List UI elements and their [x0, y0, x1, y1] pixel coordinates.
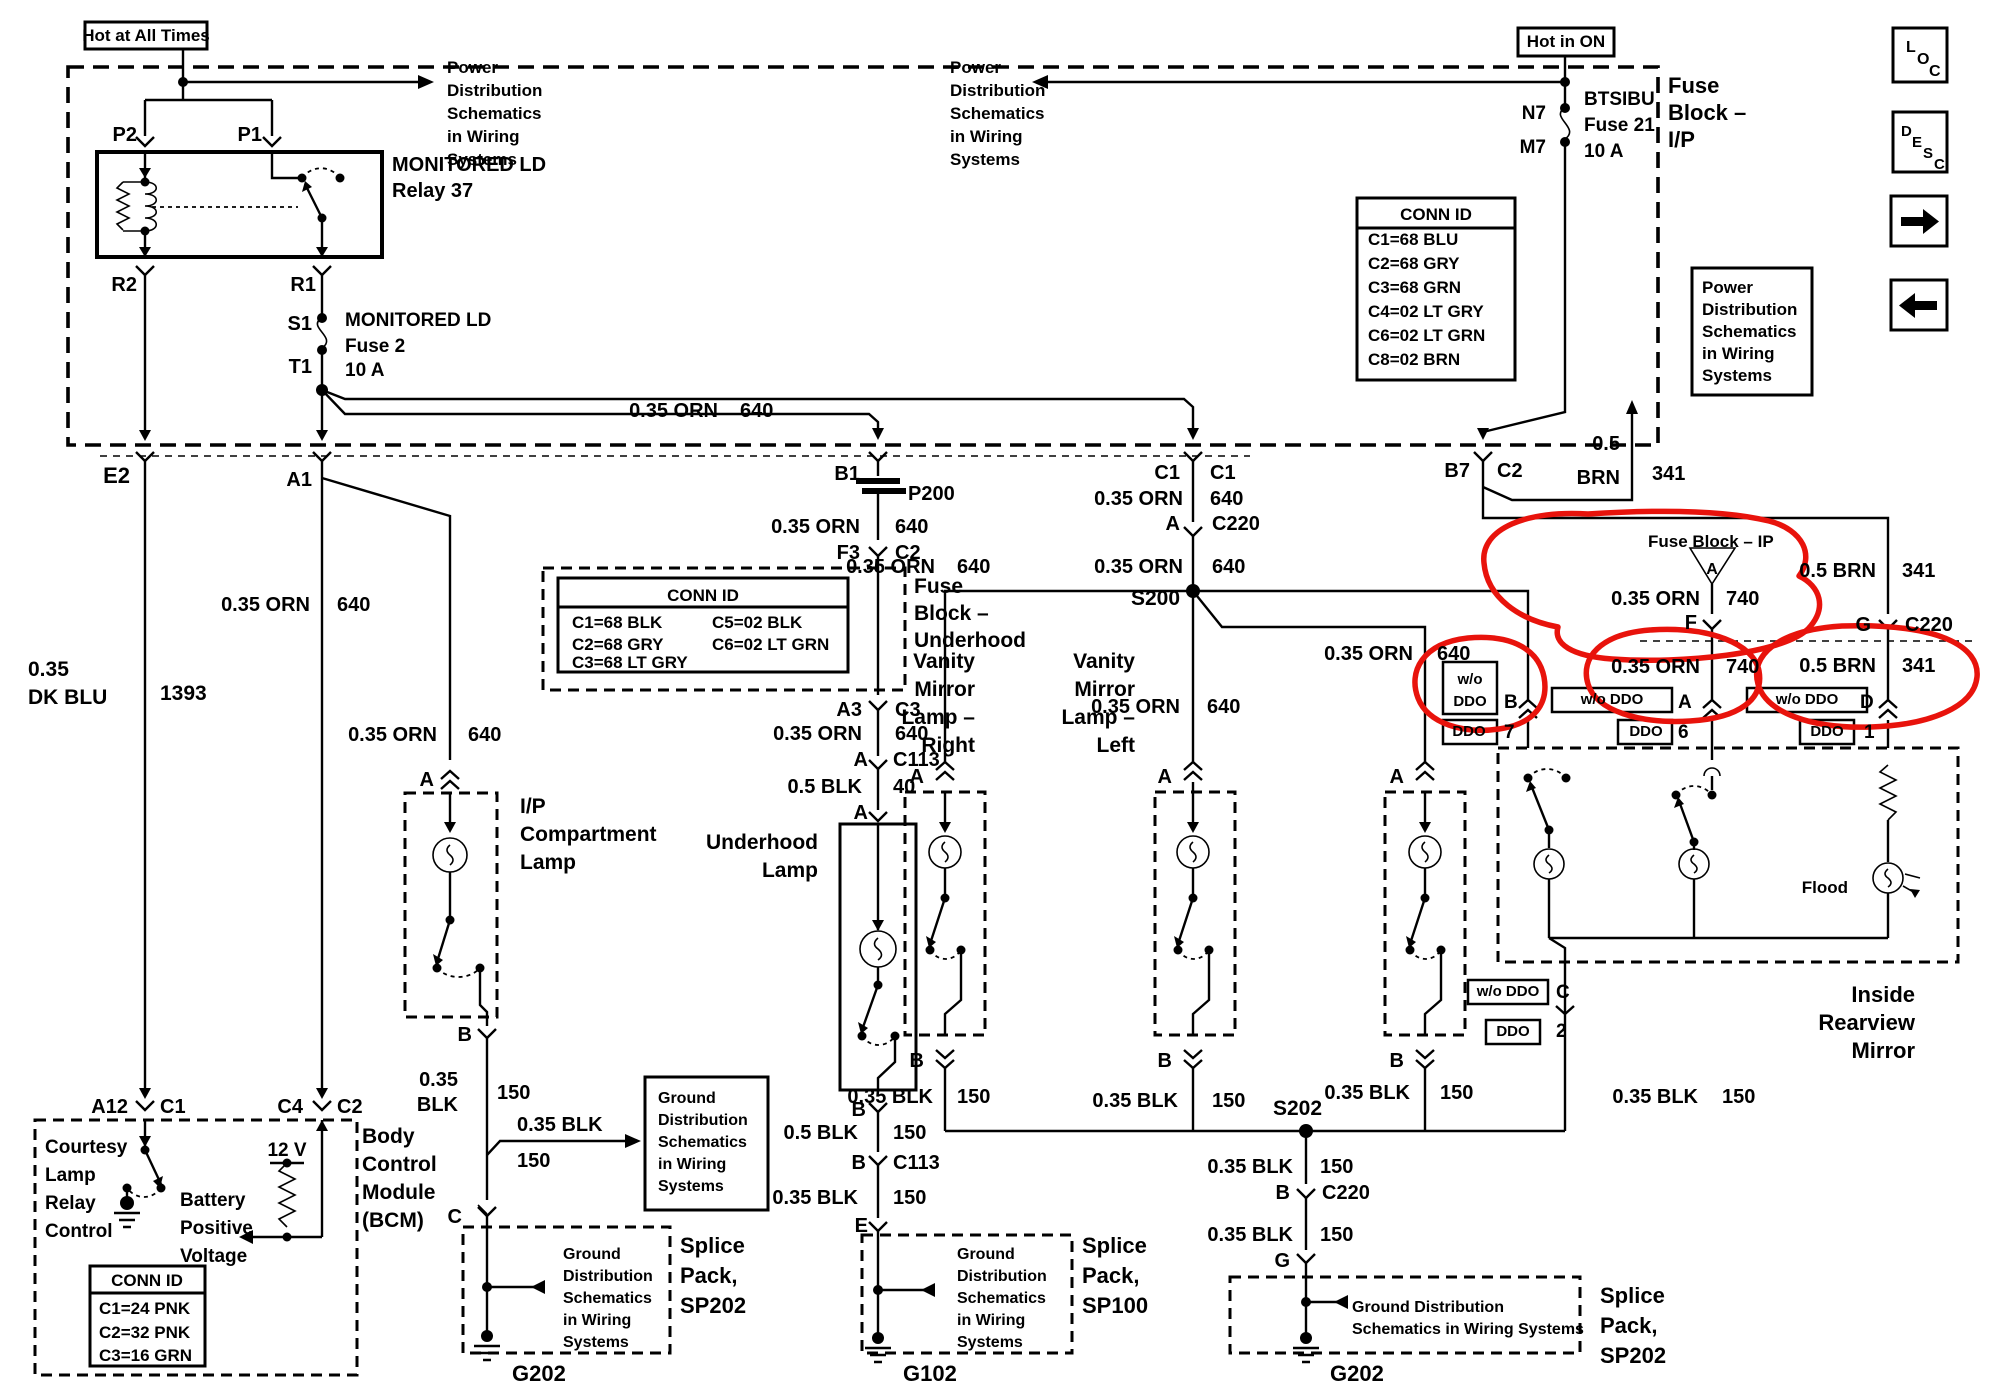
blk-lobe: 0.35 BLK: [1324, 1082, 1410, 1104]
pd-topright-2: Distribution: [950, 81, 1045, 100]
mirror-resistor: [1880, 765, 1896, 820]
wiring-diagram: Hot at All TimesHot in ONFuseBlock –I/PP…: [0, 0, 1994, 1399]
g-lbl: G: [1855, 614, 1871, 636]
orn-feed: 0.35 ORN: [629, 400, 718, 422]
t1: T1: [289, 356, 312, 378]
loc-l: L: [1906, 39, 1916, 56]
desc-e: E: [1912, 134, 1922, 151]
bcm-3: Module: [362, 1181, 436, 1204]
mirror-map-lamp-lobe: [1385, 792, 1465, 1131]
pd-topleft-1: Power: [447, 58, 498, 77]
connid-ip-2: C2=68 GRY: [1368, 254, 1460, 273]
p200-connector: [856, 478, 900, 484]
f3-orn: 0.35 ORN: [771, 516, 860, 538]
pin-b: B: [1504, 692, 1518, 713]
blk-mir: 0.35 BLK: [1612, 1086, 1698, 1108]
sp202r-2: Schematics in Wiring Systems: [1352, 1321, 1584, 1338]
b7-c2: C2: [1497, 460, 1523, 482]
vanity-r-1: Vanity: [913, 650, 975, 673]
branch-mirror-lobe: [1193, 591, 1425, 762]
b-lobe: B: [1390, 1050, 1404, 1072]
g-05brn-1: 0.5 BRN: [1799, 560, 1876, 582]
underhood-2: Lamp: [762, 859, 818, 882]
blk-ip: BLK: [417, 1094, 459, 1116]
b-ip: B: [458, 1024, 472, 1046]
vanity-r-2: Mirror: [914, 678, 975, 701]
pd-topleft-4: in Wiring: [447, 127, 520, 146]
g-341-1: 341: [1902, 560, 1935, 582]
btsibu-1: BTSIBU: [1584, 89, 1655, 110]
150-uh2: 150: [893, 1187, 926, 1209]
sp202l-3: Schematics: [563, 1290, 652, 1307]
sp202l-2: Distribution: [563, 1268, 653, 1285]
splice-l-1: Splice: [680, 1233, 745, 1258]
brn-05: 0.5: [1592, 433, 1620, 455]
monitored-ld-fuse-2: [313, 266, 1199, 461]
blk-branch: 0.35 BLK: [517, 1114, 603, 1136]
c4: C4: [277, 1096, 303, 1118]
f-orn1: 0.35 ORN: [1611, 588, 1700, 610]
sp100-2: Distribution: [957, 1268, 1047, 1285]
orn-uh: 0.35 ORN: [773, 723, 862, 745]
c113-1: C113: [893, 749, 940, 771]
c220-orn: 0.35 ORN: [1094, 488, 1183, 510]
p2: P2: [113, 124, 137, 146]
gd-box-3: Schematics: [658, 1134, 747, 1151]
e2: E2: [103, 463, 130, 488]
connid-uh-1: C1=68 BLK: [572, 613, 663, 632]
f-740-2: 740: [1726, 656, 1759, 678]
g-c220: C220: [1905, 614, 1953, 636]
sp100-4: in Wiring: [957, 1312, 1025, 1329]
blk-vl: 0.35 BLK: [1092, 1090, 1178, 1112]
c113-2: C113: [893, 1152, 940, 1174]
blk-uh: 0.35 BLK: [772, 1187, 858, 1209]
g-341-2: 341: [1902, 655, 1935, 677]
wire-dk-blu-1393: [136, 266, 154, 1110]
c220-s202: C220: [1322, 1182, 1370, 1204]
c1-right: C1: [1210, 462, 1236, 484]
05blk-uh: 0.5 BLK: [788, 776, 863, 798]
connid-bcm-h: CONN ID: [111, 1271, 183, 1290]
150-mir: 150: [1722, 1086, 1755, 1108]
p200: P200: [908, 483, 955, 505]
pd-topright-4: in Wiring: [950, 127, 1023, 146]
connid-bcm-3: C3=16 GRN: [99, 1346, 192, 1365]
sp100-5: Systems: [957, 1334, 1023, 1351]
a12: A12: [91, 1096, 128, 1118]
btsibu-2: Fuse 21: [1584, 115, 1655, 136]
battery-3: Voltage: [180, 1246, 247, 1267]
bcm-4: (BCM): [362, 1209, 424, 1232]
035-ip: 0.35: [419, 1069, 458, 1091]
b-vr: B: [910, 1050, 924, 1072]
r2: R2: [111, 274, 137, 296]
blk-s2: 0.35 BLK: [1207, 1224, 1293, 1246]
640-vl: 640: [1207, 696, 1240, 718]
fbip-small: Fuse Block – IP: [1648, 532, 1774, 551]
150-uh1: 150: [893, 1122, 926, 1144]
fb-uh-3: Underhood: [914, 629, 1026, 652]
irm-2: Rearview: [1818, 1010, 1916, 1035]
fuse2-3: 10 A: [345, 360, 385, 381]
hot-in-on: Hot in ON: [1527, 32, 1605, 51]
sp100-3: Schematics: [957, 1290, 1046, 1307]
splice-r-2: Pack,: [1600, 1313, 1658, 1338]
r1: R1: [290, 274, 316, 296]
g-s202: G: [1274, 1250, 1290, 1272]
s200-640: 640: [1212, 556, 1245, 578]
ddo-c: DDO: [1496, 1023, 1530, 1040]
wire-orn-640-a1: [313, 461, 459, 1110]
splice-100-3: SP100: [1082, 1293, 1148, 1318]
pd-topleft-2: Distribution: [447, 81, 542, 100]
pin-7: 7: [1504, 722, 1515, 743]
wiring-diagram-page: Hot at All TimesHot in ONFuseBlock –I/PP…: [0, 0, 1994, 1399]
btsibu-3: 10 A: [1584, 141, 1624, 162]
fuse-block-ip-3: I/P: [1668, 127, 1695, 152]
courtesy-3: Relay: [45, 1193, 96, 1214]
battery-2: Positive: [180, 1218, 253, 1239]
ground-g102: [865, 1348, 891, 1362]
ip-lamp-3: Lamp: [520, 851, 576, 874]
150-branch: 150: [517, 1150, 550, 1172]
orn-ip: 0.35 ORN: [348, 724, 437, 746]
b1: B1: [834, 463, 860, 485]
640-a1: 640: [337, 594, 370, 616]
bcm-1: Body: [362, 1125, 415, 1148]
pd-rightbox-2: Distribution: [1702, 300, 1797, 319]
connid-uh-h: CONN ID: [667, 586, 739, 605]
diagram-labels: Hot at All TimesHot in ONFuseBlock –I/PP…: [28, 26, 1953, 1386]
splice-100-2: Pack,: [1082, 1263, 1140, 1288]
640-lobe: 640: [1437, 643, 1470, 665]
c3: C3: [895, 699, 921, 721]
desc-c: C: [1934, 156, 1945, 173]
ip-lamp-2: Compartment: [520, 823, 657, 846]
splice-l-2: Pack,: [680, 1263, 738, 1288]
connid-ip-4: C4=02 LT GRY: [1368, 302, 1484, 321]
s200: S200: [1131, 587, 1180, 610]
fuse-block-ip-2: Block –: [1668, 100, 1746, 125]
a-lobe: A: [1390, 766, 1404, 788]
n7: N7: [1522, 103, 1546, 124]
branch-to-ip-lamp: [322, 478, 450, 760]
loc-c: C: [1929, 63, 1941, 80]
ddo-a: DDO: [1629, 723, 1663, 740]
connid-ip-6: C8=02 BRN: [1368, 350, 1460, 369]
loc-o: O: [1917, 51, 1929, 68]
courtesy-ground: [114, 1213, 140, 1227]
pd-topright-3: Schematics: [950, 104, 1045, 123]
m7: M7: [1520, 137, 1546, 158]
c1-left: C1: [1154, 462, 1180, 484]
connid-uh-2: C2=68 GRY: [572, 635, 664, 654]
fuse-block-ip-1: Fuse: [1668, 73, 1719, 98]
fuse2-1: MONITORED LD: [345, 310, 491, 331]
splice-r-3: SP202: [1600, 1343, 1666, 1368]
b-s202: B: [1276, 1182, 1290, 1204]
f-740-1: 740: [1726, 588, 1759, 610]
wo-ddo-c: w/o DDO: [1476, 983, 1540, 1000]
feed-line-to-b1: [322, 390, 878, 432]
fbip-a: A: [1706, 561, 1718, 578]
brn-brn: BRN: [1577, 467, 1620, 489]
g202-left: G202: [512, 1361, 566, 1386]
b7: B7: [1444, 460, 1470, 482]
connid-ip-1: C1=68 BLU: [1368, 230, 1458, 249]
s200-orn: 0.35 ORN: [1094, 556, 1183, 578]
pd-rightbox-1: Power: [1702, 278, 1753, 297]
150-ip: 150: [497, 1082, 530, 1104]
ip-lamp-1: I/P: [520, 795, 546, 818]
splice-l-3: SP202: [680, 1293, 746, 1318]
underhood-1: Underhood: [706, 831, 818, 854]
a-vl: A: [1158, 766, 1172, 788]
next-arrow-icon[interactable]: [1891, 196, 1947, 246]
relay-coil-resistor: [117, 182, 129, 230]
sp202r-1: Ground Distribution: [1352, 1299, 1504, 1316]
150-s2: 150: [1320, 1224, 1353, 1246]
640-uh: 640: [895, 723, 928, 745]
g202-right: G202: [1330, 1361, 1384, 1386]
orn-a1: 0.35 ORN: [221, 594, 310, 616]
pd-topleft-3: Schematics: [447, 104, 542, 123]
courtesy-2: Lamp: [45, 1165, 96, 1186]
inside-rearview-mirror: [1498, 748, 1958, 1131]
a-c113: A: [854, 749, 868, 771]
connid-bcm-1: C1=24 PNK: [99, 1299, 191, 1318]
pin-a: A: [1678, 692, 1692, 713]
connid-uh-4: C5=02 BLK: [712, 613, 803, 632]
wo-ddo-b1: w/o: [1457, 671, 1483, 688]
g-05brn-2: 0.5 BRN: [1799, 655, 1876, 677]
irm-3: Mirror: [1851, 1038, 1915, 1063]
desc-s: S: [1923, 145, 1933, 162]
hot-at-all-times: Hot at All Times: [82, 26, 210, 45]
a-ip: A: [420, 769, 434, 791]
c-ip: C: [448, 1206, 462, 1228]
splice-r-1: Splice: [1600, 1283, 1665, 1308]
sp202l-1: Ground: [563, 1246, 621, 1263]
s1: S1: [288, 313, 312, 335]
wo-ddo-d: w/o DDO: [1775, 691, 1839, 708]
gd-box-1: Ground: [658, 1090, 716, 1107]
bcm-2: Control: [362, 1153, 437, 1176]
pd-topright-1: Power: [950, 58, 1001, 77]
splice-100-1: Splice: [1082, 1233, 1147, 1258]
brn-341: 341: [1652, 463, 1685, 485]
a1: A1: [286, 469, 312, 491]
c220-640: 640: [1210, 488, 1243, 510]
desc-d: D: [1901, 123, 1912, 140]
bcm-resistor: [279, 1163, 295, 1227]
e-uh: E: [855, 1215, 868, 1237]
prev-arrow-icon[interactable]: [1891, 280, 1947, 330]
c220: C220: [1212, 513, 1260, 535]
a-uh2: A: [854, 802, 868, 824]
orn-lobe: 0.35 ORN: [1324, 643, 1413, 665]
relay-name-1: MONITORED LD: [392, 154, 546, 176]
relay-name-2: Relay 37: [392, 180, 473, 202]
monitored-ld-relay: [97, 49, 434, 257]
ddo-d: DDO: [1810, 723, 1844, 740]
fb-uh-2: Block –: [914, 602, 989, 625]
branch-to-ground-dist: [487, 1141, 625, 1155]
connid-ip-3: C3=68 GRN: [1368, 278, 1461, 297]
connid-uh-3: C3=68 LT GRY: [572, 653, 688, 672]
pin-d: D: [1860, 692, 1874, 713]
reference-arrow-right: [418, 75, 434, 89]
p1: P1: [238, 124, 262, 146]
connid-bcm-2: C2=32 PNK: [99, 1323, 191, 1342]
connid-ip-h: CONN ID: [1400, 205, 1472, 224]
connid-ip-5: C6=02 LT GRN: [1368, 326, 1485, 345]
courtesy-4: Control: [45, 1221, 113, 1242]
pin-1: 1: [1864, 722, 1875, 743]
a3: A3: [836, 699, 862, 721]
pin-2: 2: [1556, 1021, 1567, 1042]
pin-c: C: [1556, 982, 1570, 1003]
c2-bcm: C2: [337, 1096, 363, 1118]
gd-box-5: Systems: [658, 1178, 724, 1195]
c220-a: A: [1166, 513, 1180, 535]
640-ip: 640: [468, 724, 501, 746]
vanity-l-1: Vanity: [1073, 650, 1135, 673]
sp100-1: Ground: [957, 1246, 1015, 1263]
g102: G102: [903, 1361, 957, 1386]
sp202l-4: in Wiring: [563, 1312, 631, 1329]
vanity-l-4: Left: [1097, 734, 1136, 757]
fuse2-2: Fuse 2: [345, 336, 405, 357]
150-vr: 150: [957, 1086, 990, 1108]
gd-box-2: Distribution: [658, 1112, 748, 1129]
ground-g202-right: [1293, 1348, 1319, 1362]
gd-box-4: in Wiring: [658, 1156, 726, 1173]
s202: S202: [1273, 1097, 1322, 1120]
pd-rightbox-3: Schematics: [1702, 322, 1797, 341]
f3-640: 640: [895, 516, 928, 538]
c1-bcm: C1: [160, 1096, 186, 1118]
05blk-150: 0.5 BLK: [784, 1122, 859, 1144]
f-lbl: F: [1685, 612, 1697, 634]
150-s1: 150: [1320, 1156, 1353, 1178]
035-dkblu-2: DK BLU: [28, 686, 107, 709]
pd-rightbox-5: Systems: [1702, 366, 1772, 385]
battery-1: Battery: [180, 1190, 246, 1211]
wo-ddo-b2: DDO: [1453, 693, 1487, 710]
sp202l-5: Systems: [563, 1334, 629, 1351]
035-dkblu-1: 0.35: [28, 658, 69, 681]
ddo-b: DDO: [1452, 723, 1486, 740]
12v: 12 V: [267, 1140, 306, 1161]
wo-ddo-a: w/o DDO: [1580, 691, 1644, 708]
f-orn2: 0.35 ORN: [1611, 656, 1700, 678]
pd-topright-5: Systems: [950, 150, 1020, 169]
b-uh1: B: [852, 1099, 866, 1121]
150-lobe: 150: [1440, 1082, 1473, 1104]
irm-1: Inside: [1851, 982, 1915, 1007]
pin-6: 6: [1678, 722, 1689, 743]
blk-s1: 0.35 BLK: [1207, 1156, 1293, 1178]
40-uh: 40: [893, 776, 915, 798]
connid-uh-5: C6=02 LT GRN: [712, 635, 829, 654]
fb-uh-1: Fuse: [914, 575, 963, 598]
pd-rightbox-4: in Wiring: [1702, 344, 1775, 363]
orn-feed-640: 640: [740, 400, 773, 422]
b-vl: B: [1158, 1050, 1172, 1072]
orn-vl: 0.35 ORN: [1091, 696, 1180, 718]
b-uh2: B: [852, 1152, 866, 1174]
150-vl: 150: [1212, 1090, 1245, 1112]
courtesy-1: Courtesy: [45, 1137, 128, 1158]
1393: 1393: [160, 682, 207, 705]
vanity-mirror-lamp-left: [1155, 792, 1235, 1131]
flood: Flood: [1802, 878, 1848, 897]
